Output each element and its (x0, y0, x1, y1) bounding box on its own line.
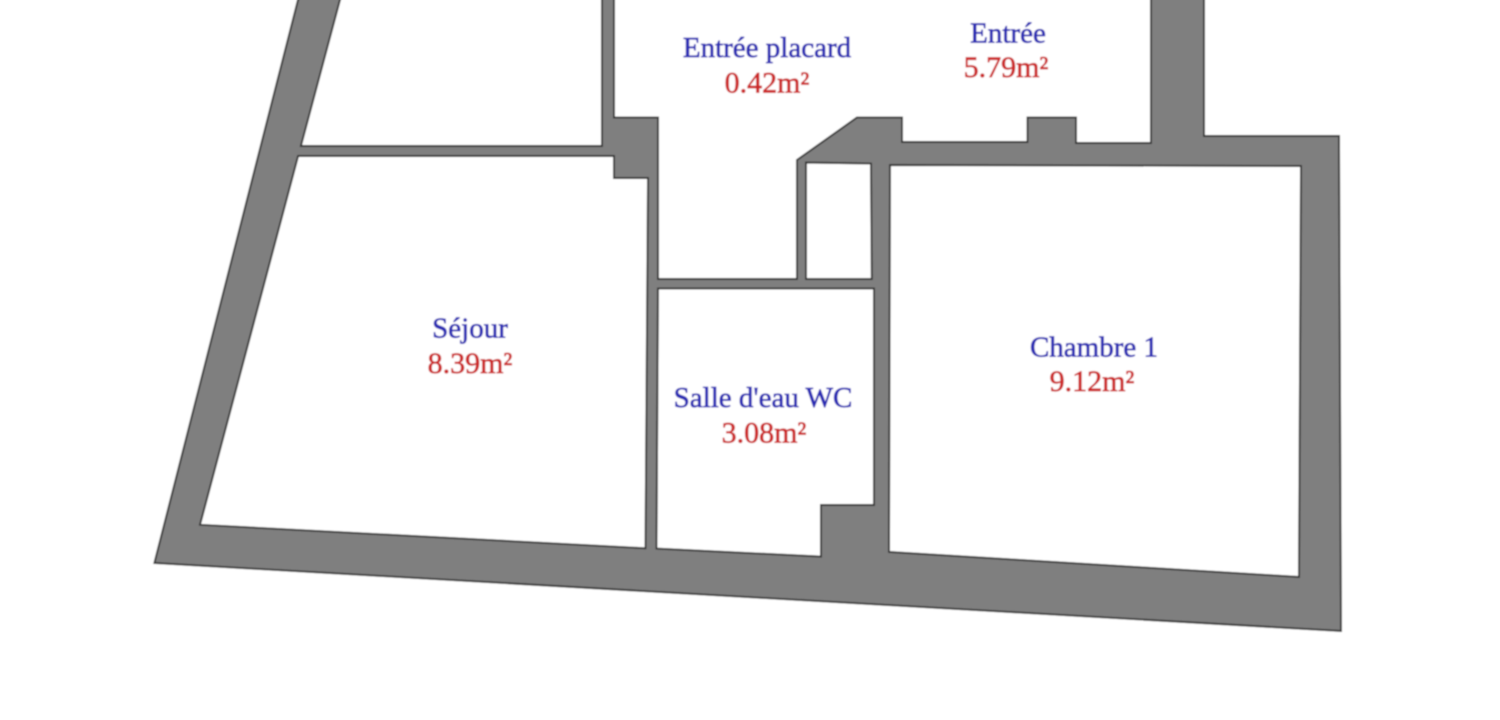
svg-text:8.39m²: 8.39m² (428, 347, 513, 380)
svg-text:Chambre 1: Chambre 1 (1030, 332, 1158, 364)
svg-text:Entrée: Entrée (970, 18, 1046, 50)
svg-text:5.79m²: 5.79m² (964, 51, 1049, 84)
svg-text:Salle d'eau WC: Salle d'eau WC (674, 382, 853, 414)
svg-text:3.08m²: 3.08m² (722, 417, 807, 450)
svg-text:Séjour: Séjour (432, 313, 508, 345)
svg-text:0.42m²: 0.42m² (725, 67, 810, 100)
svg-text:9.12m²: 9.12m² (1050, 365, 1135, 398)
svg-text:Entrée placard: Entrée placard (683, 32, 852, 64)
